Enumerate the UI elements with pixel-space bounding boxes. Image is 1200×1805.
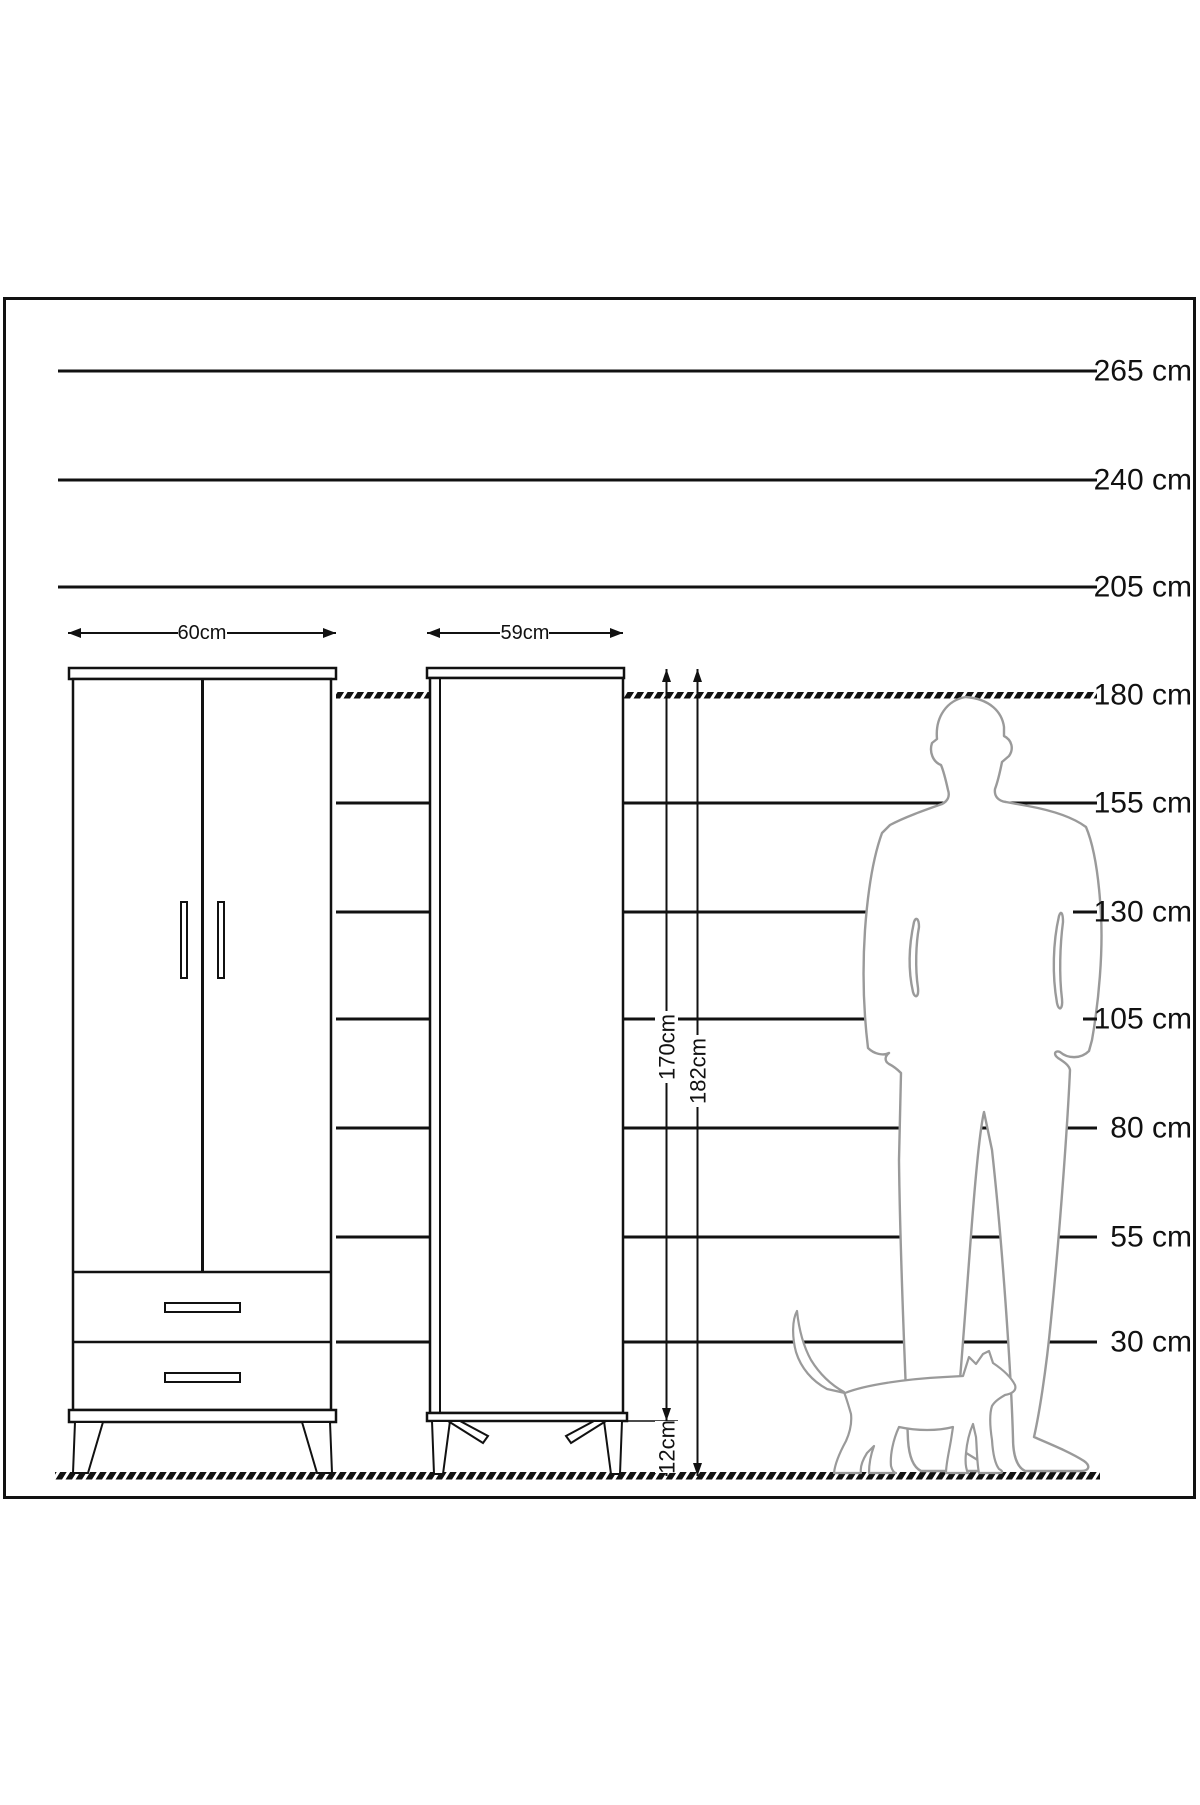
wardrobe-right-total-height-label: 182cm xyxy=(686,1038,711,1104)
wardrobe-right-body xyxy=(430,678,623,1413)
wardrobe-right-back-leg-left xyxy=(448,1421,488,1443)
scale-label-155cm: 155 cm xyxy=(1094,787,1192,820)
scale-label-80cm: 80 cm xyxy=(1110,1112,1192,1145)
dimension-wardrobe-right-total-height: 182cm xyxy=(686,669,711,1476)
wardrobe-right-top-panel xyxy=(427,668,624,678)
arrow-left-icon xyxy=(427,628,440,638)
wardrobe-right-leg-right xyxy=(604,1421,622,1474)
diagram-canvas: 60cm 59cm 170cm 12cm 182cm xyxy=(0,0,1200,1800)
wardrobe-right xyxy=(427,668,627,1474)
wardrobe-left-top-panel xyxy=(69,668,336,679)
right-door-handle xyxy=(218,902,224,978)
wardrobe-right-plinth xyxy=(427,1413,627,1421)
lower-drawer-handle xyxy=(165,1373,240,1382)
dimension-wardrobe-right-width: 59cm xyxy=(427,621,623,644)
scale-label-105cm: 105 cm xyxy=(1094,1003,1192,1036)
scale-label-130cm: 130 cm xyxy=(1094,896,1192,929)
upper-drawer-handle xyxy=(165,1303,240,1312)
wardrobe-right-leg-left xyxy=(432,1421,450,1474)
arrow-up-icon xyxy=(693,669,702,682)
scale-label-180cm: 180 cm xyxy=(1094,679,1192,712)
wardrobe-left-leg-right xyxy=(302,1422,332,1473)
arrow-right-icon xyxy=(610,628,623,638)
height-scale-labels: 265 cm 240 cm 205 cm 180 cm 155 cm 130 c… xyxy=(1094,355,1192,1359)
scale-label-240cm: 240 cm xyxy=(1094,464,1192,497)
wardrobe-left-plinth xyxy=(69,1410,336,1422)
ground-line xyxy=(55,1472,1100,1480)
arrow-left-icon xyxy=(68,628,81,638)
wardrobe-right-back-leg-right xyxy=(566,1421,606,1443)
size-guide-diagram: 60cm 59cm 170cm 12cm 182cm xyxy=(0,0,1200,1800)
scale-label-205cm: 205 cm xyxy=(1094,571,1192,604)
dimension-wardrobe-left-width: 60cm xyxy=(68,621,336,644)
scale-label-30cm: 30 cm xyxy=(1110,1326,1192,1359)
wardrobe-left-leg-left xyxy=(73,1422,103,1473)
wardrobe-left-width-label: 60cm xyxy=(178,622,227,644)
arrow-right-icon xyxy=(323,628,336,638)
scale-label-55cm: 55 cm xyxy=(1110,1221,1192,1254)
wardrobe-left xyxy=(69,668,336,1473)
wardrobe-right-width-label: 59cm xyxy=(501,622,550,644)
arrow-up-icon xyxy=(662,669,671,682)
dimension-wardrobe-right-heights: 170cm 12cm xyxy=(628,669,680,1476)
left-door-handle xyxy=(181,902,187,978)
arrow-down-icon xyxy=(662,1408,671,1421)
wardrobe-right-leg-height-label: 12cm xyxy=(655,1420,680,1474)
wardrobe-right-body-height-label: 170cm xyxy=(655,1014,680,1080)
scale-label-265cm: 265 cm xyxy=(1094,355,1192,388)
